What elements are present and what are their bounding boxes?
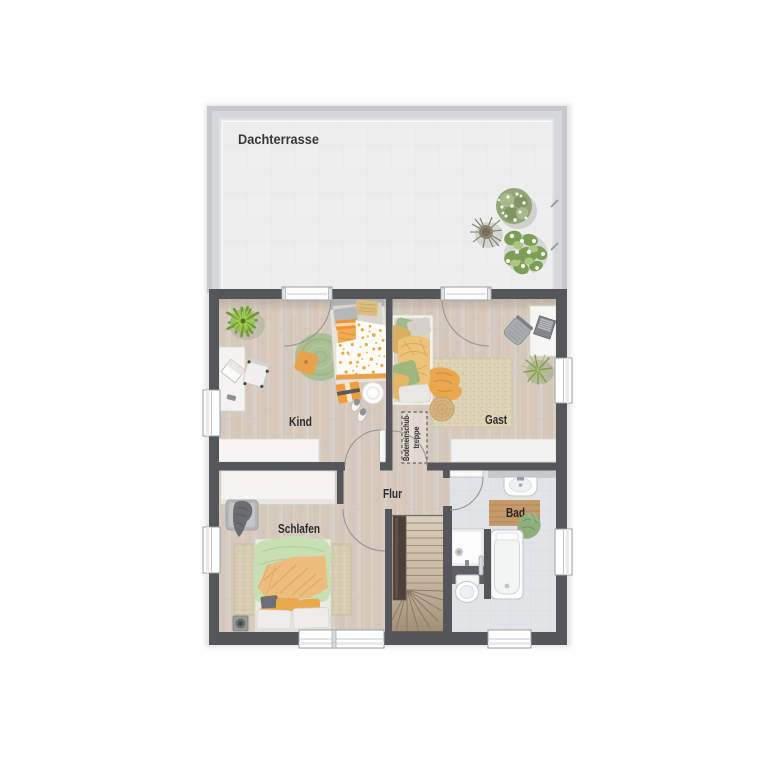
svg-text:Dachterrasse: Dachterrasse	[238, 132, 319, 147]
svg-text:Flur: Flur	[383, 486, 402, 501]
svg-text:Bodeneinschub-: Bodeneinschub-	[402, 414, 411, 461]
svg-text:Kind: Kind	[289, 414, 312, 429]
svg-text:Gast: Gast	[485, 412, 508, 427]
svg-text:Schlafen: Schlafen	[278, 521, 320, 536]
